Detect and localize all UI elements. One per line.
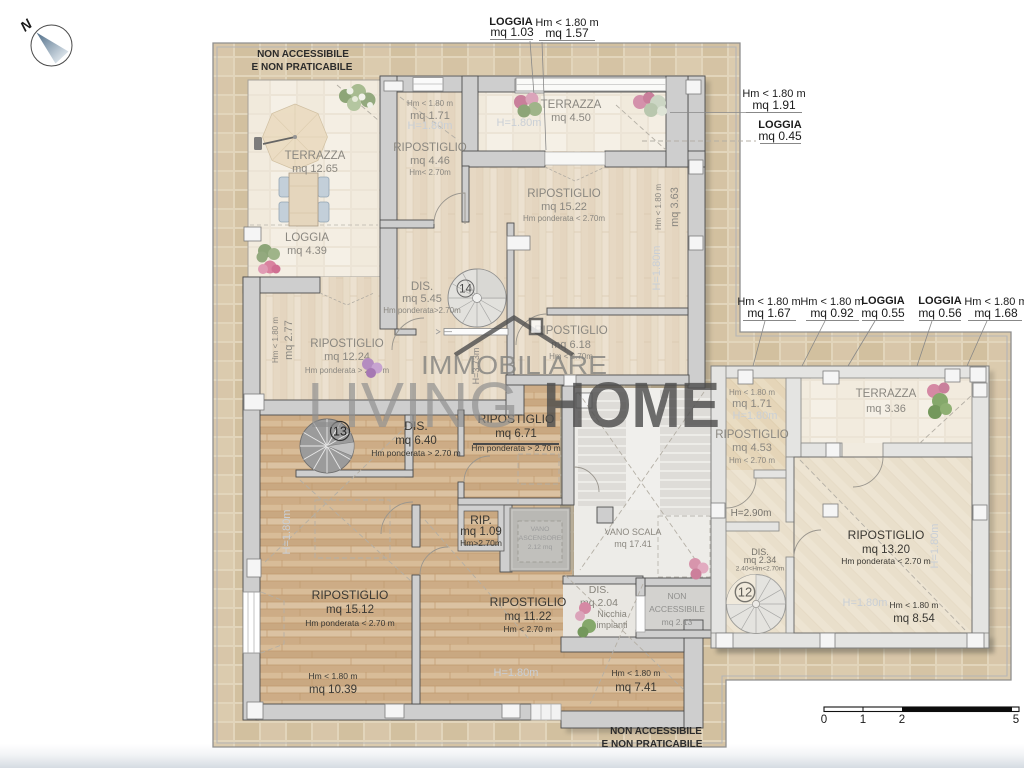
svg-text:mq 15.22: mq 15.22 <box>541 201 587 213</box>
svg-text:Hm ponderata < 2.70 m: Hm ponderata < 2.70 m <box>841 556 931 566</box>
svg-text:RIPOSTIGLIO: RIPOSTIGLIO <box>715 429 789 441</box>
svg-text:NON ACCESSIBILE: NON ACCESSIBILE <box>257 49 349 60</box>
svg-text:mq 1.67: mq 1.67 <box>747 306 791 320</box>
svg-text:mq 10.39: mq 10.39 <box>309 684 357 696</box>
svg-text:mq 5.45: mq 5.45 <box>402 293 442 305</box>
svg-text:E NON PRATICABILE: E NON PRATICABILE <box>602 739 703 750</box>
svg-text:LIVING: LIVING <box>307 369 519 441</box>
svg-text:Hm ponderata>2.70m: Hm ponderata>2.70m <box>383 306 461 315</box>
svg-text:Hm < 1.80 m: Hm < 1.80 m <box>729 388 775 397</box>
svg-text:mq 0.45: mq 0.45 <box>758 129 802 143</box>
svg-text:mq 3.36: mq 3.36 <box>866 403 906 415</box>
svg-text:mq 3.63: mq 3.63 <box>669 187 681 227</box>
svg-text:ACCESSIBILE: ACCESSIBILE <box>649 604 705 614</box>
svg-text:mq 12.65: mq 12.65 <box>292 163 338 175</box>
svg-text:RIPOSTIGLIO: RIPOSTIGLIO <box>312 588 389 602</box>
svg-text:H=2.90m: H=2.90m <box>731 508 772 519</box>
svg-text:mq 1.68: mq 1.68 <box>974 306 1018 320</box>
svg-text:mq 4.50: mq 4.50 <box>551 112 591 124</box>
svg-text:Hm < 1.80 m: Hm < 1.80 m <box>890 600 939 610</box>
svg-text:Hm < 2.70 m: Hm < 2.70 m <box>504 624 553 634</box>
svg-text:2.12 mq: 2.12 mq <box>528 544 553 551</box>
svg-text:Hm < 2.70 m: Hm < 2.70 m <box>729 456 775 465</box>
svg-text:HOME: HOME <box>543 369 720 441</box>
svg-text:Hm ponderata > 2.70 m: Hm ponderata > 2.70 m <box>371 448 461 458</box>
svg-text:VANO: VANO <box>531 526 550 533</box>
svg-text:2.40<Hm<2.70m: 2.40<Hm<2.70m <box>736 566 784 573</box>
svg-text:mq 0.92: mq 0.92 <box>810 306 854 320</box>
svg-text:5: 5 <box>1013 714 1019 726</box>
svg-text:DIS.: DIS. <box>589 584 609 596</box>
svg-text:mq 0.56: mq 0.56 <box>918 306 962 320</box>
svg-text:H=1.80m: H=1.80m <box>733 410 778 422</box>
svg-text:14: 14 <box>459 284 472 296</box>
svg-text:RIPOSTIGLIO: RIPOSTIGLIO <box>490 595 567 609</box>
svg-text:E NON PRATICABILE: E NON PRATICABILE <box>252 62 353 73</box>
svg-text:H=1.80m: H=1.80m <box>843 597 888 609</box>
svg-text:mq 1.91: mq 1.91 <box>752 98 796 112</box>
svg-text:1: 1 <box>860 714 866 726</box>
svg-text:mq 8.54: mq 8.54 <box>893 613 935 625</box>
svg-text:H=1.80m: H=1.80m <box>651 246 663 291</box>
svg-text:NON: NON <box>668 591 687 601</box>
svg-text:Nicchia: Nicchia <box>597 609 627 619</box>
svg-text:mq 13.20: mq 13.20 <box>862 544 910 556</box>
svg-text:Hm < 1.80 m: Hm < 1.80 m <box>309 671 358 681</box>
svg-text:RIPOSTIGLIO: RIPOSTIGLIO <box>310 338 384 350</box>
svg-text:mq 7.41: mq 7.41 <box>615 682 657 694</box>
svg-text:Hm ponderata < 2.70 m: Hm ponderata < 2.70 m <box>305 618 395 628</box>
svg-text:H=1.80m: H=1.80m <box>494 667 539 679</box>
svg-text:ASCENSORE: ASCENSORE <box>519 535 562 542</box>
svg-text:mq 1.57: mq 1.57 <box>545 26 589 40</box>
svg-text:mq 15.12: mq 15.12 <box>326 604 374 616</box>
svg-text:TERRAZZA: TERRAZZA <box>856 388 917 400</box>
svg-text:2: 2 <box>899 714 905 726</box>
svg-text:TERRAZZA: TERRAZZA <box>541 99 602 111</box>
svg-text:LOGGIA: LOGGIA <box>285 232 329 244</box>
svg-text:mq 2.13: mq 2.13 <box>662 617 693 627</box>
svg-text:mq 1.71: mq 1.71 <box>732 398 772 410</box>
svg-text:H=1.80m: H=1.80m <box>408 120 453 132</box>
svg-text:mq 4.39: mq 4.39 <box>287 245 327 257</box>
svg-text:RIPOSTIGLIO: RIPOSTIGLIO <box>848 528 925 542</box>
svg-text:mq 2.77: mq 2.77 <box>283 320 295 360</box>
svg-text:mq 0.55: mq 0.55 <box>861 306 905 320</box>
svg-text:NON ACCESSIBILE: NON ACCESSIBILE <box>610 726 702 737</box>
svg-text:Hm>2.70m: Hm>2.70m <box>460 538 502 548</box>
svg-text:Hm ponderata > 2.70 m: Hm ponderata > 2.70 m <box>471 443 561 453</box>
svg-text:H=1.80m: H=1.80m <box>929 524 941 569</box>
svg-text:VANO SCALA: VANO SCALA <box>605 527 662 537</box>
svg-text:mq 17.41: mq 17.41 <box>614 539 652 549</box>
svg-text:RIPOSTIGLIO: RIPOSTIGLIO <box>393 142 467 154</box>
svg-text:Hm< 2.70m: Hm< 2.70m <box>409 168 451 177</box>
svg-text:mq 4.46: mq 4.46 <box>410 155 450 167</box>
svg-text:0: 0 <box>821 714 827 726</box>
svg-text:RIPOSTIGLIO: RIPOSTIGLIO <box>527 188 601 200</box>
svg-text:impianti: impianti <box>596 620 627 630</box>
svg-text:mq 4.53: mq 4.53 <box>732 442 772 454</box>
svg-text:Hm < 1.80 m: Hm < 1.80 m <box>407 99 453 108</box>
svg-text:Hm < 1.80 m: Hm < 1.80 m <box>271 317 280 363</box>
svg-text:Hm < 1.80 m: Hm < 1.80 m <box>654 184 663 230</box>
svg-text:DIS.: DIS. <box>411 281 433 293</box>
svg-text:RIP.: RIP. <box>470 513 492 527</box>
svg-text:Hm < 1.80 m: Hm < 1.80 m <box>612 668 661 678</box>
svg-text:mq 11.22: mq 11.22 <box>504 611 551 623</box>
svg-text:12: 12 <box>738 585 752 600</box>
svg-text:Hm ponderata < 2.70m: Hm ponderata < 2.70m <box>523 214 605 223</box>
svg-text:H=1.80m: H=1.80m <box>497 117 542 129</box>
svg-text:TERRAZZA: TERRAZZA <box>285 150 346 162</box>
svg-text:H=1.80m: H=1.80m <box>281 510 293 555</box>
svg-text:mq 1.03: mq 1.03 <box>490 25 534 39</box>
svg-text:mq 2.34: mq 2.34 <box>744 555 777 565</box>
svg-text:mq 1.09: mq 1.09 <box>460 526 502 538</box>
